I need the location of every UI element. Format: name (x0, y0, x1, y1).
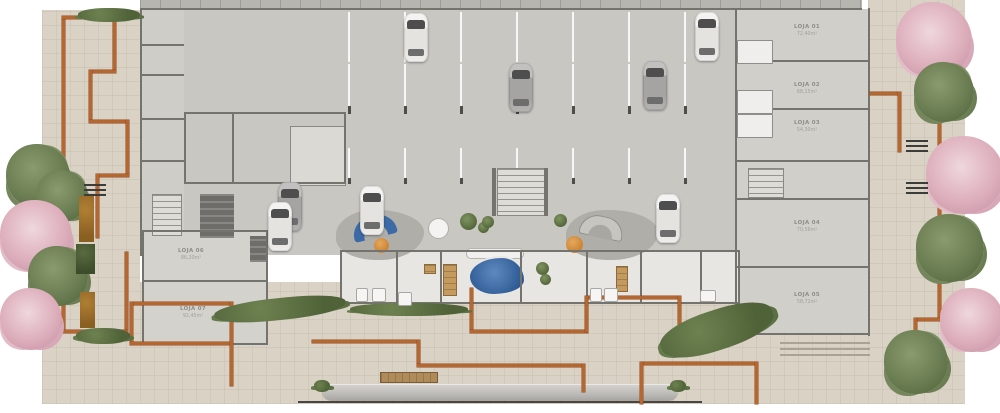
unit-area: 54,30m² (786, 127, 828, 133)
wall-segment (344, 112, 346, 182)
planter-bed (79, 196, 94, 242)
potted-plant (460, 213, 477, 230)
unit-name: LOJA 07 (172, 306, 214, 313)
wall-segment (640, 252, 642, 302)
shop-elevator (250, 236, 266, 262)
bicycle-rack-bar (906, 187, 928, 189)
wall-segment (340, 250, 740, 252)
parked-car (360, 186, 384, 235)
garden-path-line (130, 302, 230, 305)
garden-path-line (470, 288, 473, 332)
potted-plant (540, 274, 551, 285)
plaza-curb-wall (322, 384, 678, 400)
garden-path-line (130, 302, 133, 344)
wall-segment (735, 266, 870, 268)
unit-label: LOJA 0686,20m² (170, 248, 212, 261)
unit-label: LOJA 0470,56m² (786, 220, 828, 233)
water-feature-pond (468, 256, 526, 296)
tree-green (914, 62, 974, 122)
bicycle-rack-bar (906, 182, 928, 184)
potted-plant (536, 262, 549, 275)
garden-path-line (96, 174, 129, 177)
tree-pink (926, 136, 1000, 214)
bicycle-rack-bar (906, 145, 928, 147)
unit-area: 92,45m² (172, 313, 214, 319)
wall-segment (544, 168, 548, 216)
garden-path-line (582, 364, 585, 392)
plaza-steps-right (780, 342, 870, 360)
bicycle-rack-bar (84, 189, 106, 191)
tree-green (916, 214, 984, 282)
wall-segment (266, 230, 268, 344)
structural-columns-row (348, 106, 740, 114)
wall-segment (738, 252, 740, 302)
bicycle-rack-bar (906, 150, 928, 152)
unit-name: LOJA 03 (786, 120, 828, 127)
garden-path-line (126, 120, 129, 176)
garden-path-line (870, 92, 900, 95)
unit-area: 58,72m² (786, 299, 828, 305)
garden-path-line (640, 362, 758, 365)
bathroom-fixture (356, 288, 368, 302)
bathroom-fixture (700, 290, 716, 302)
garden-path-line (585, 296, 588, 332)
parked-car (695, 12, 719, 61)
wall-segment (184, 112, 186, 182)
wall-segment (440, 252, 442, 302)
wall-segment (140, 118, 184, 120)
right-staircase (748, 168, 784, 198)
wall-segment (142, 230, 144, 344)
parked-car (656, 194, 680, 243)
garden-path-line (130, 342, 230, 345)
round-table-white (428, 218, 449, 239)
wood-shelf-unit (443, 264, 457, 296)
unit-area: 68,15m² (786, 89, 828, 95)
unit-area: 86,20m² (170, 255, 212, 261)
wall-segment (140, 44, 184, 46)
wall-segment (735, 160, 870, 162)
unit-label: LOJA 0792,45m² (172, 306, 214, 319)
garden-path-line (914, 318, 941, 321)
garden-path-line (640, 362, 643, 404)
unit-label: LOJA 0558,72m² (786, 292, 828, 305)
garden-path-line (89, 70, 116, 73)
bathroom-fixture (604, 288, 618, 302)
garden-path-line (125, 252, 128, 332)
storage-unit (737, 40, 773, 64)
potted-plant (554, 214, 567, 227)
bicycle-rack-bar (906, 192, 928, 194)
unit-name: LOJA 01 (786, 24, 828, 31)
parked-car (404, 13, 428, 62)
wall-segment (868, 8, 870, 336)
parked-car (268, 202, 292, 251)
garden-path-line (898, 92, 901, 152)
garden-path-line (113, 16, 116, 72)
tree-pink (940, 288, 1000, 352)
tree-pink (0, 288, 62, 350)
wall-segment (586, 252, 588, 302)
garden-path-line (89, 70, 92, 122)
garden-path-line (312, 340, 420, 343)
unit-area: 72,40m² (786, 31, 828, 37)
unit-name: LOJA 06 (170, 248, 212, 255)
bicycle-rack-bar (84, 184, 106, 186)
unit-name: LOJA 02 (786, 82, 828, 89)
unit-label: LOJA 0172,40m² (786, 24, 828, 37)
wood-counter-small (424, 264, 436, 274)
parked-car (643, 61, 667, 110)
plaza-bench (380, 372, 438, 383)
wall-segment (142, 230, 268, 232)
planter-bed (80, 292, 95, 328)
garage-interior-room (290, 126, 346, 186)
tree-green (884, 330, 948, 394)
central-staircase (497, 168, 547, 216)
wall-segment (184, 112, 346, 114)
garden-path-line (89, 120, 129, 123)
wall-segment (140, 160, 184, 162)
bathroom-fixture (398, 292, 412, 306)
wall-segment (184, 182, 346, 184)
wall-segment (735, 198, 870, 200)
wall-segment (142, 280, 268, 282)
parked-car (509, 63, 533, 112)
wall-segment (140, 74, 184, 76)
wood-shelf-unit-right (616, 266, 628, 292)
storage-unit (737, 90, 773, 114)
unit-area: 70,56m² (786, 227, 828, 233)
wall-segment (232, 112, 234, 182)
planter-bed (76, 244, 95, 274)
wall-segment (140, 8, 862, 10)
hedge (78, 8, 140, 22)
bathroom-fixture (590, 288, 602, 302)
potted-plant (482, 216, 494, 228)
hedge (670, 380, 686, 392)
wall-segment (340, 252, 342, 302)
garden-path-line (470, 330, 588, 333)
hedge (76, 328, 130, 344)
parking-stalls-row-2 (348, 64, 740, 110)
garden-path-line (417, 364, 585, 367)
wall-segment (520, 252, 522, 302)
bathroom-fixture (372, 288, 386, 302)
unit-name: LOJA 04 (786, 220, 828, 227)
unit-label: LOJA 0268,15m² (786, 82, 828, 95)
storage-unit (737, 114, 773, 138)
bicycle-rack-bar (84, 194, 106, 196)
unit-name: LOJA 05 (786, 292, 828, 299)
garden-path-line (755, 362, 758, 404)
bicycle-rack-bar (906, 140, 928, 142)
floor-plan-canvas: LOJA 0172,40m²LOJA 0268,15m²LOJA 0354,30… (0, 0, 1000, 413)
garden-path-line (417, 340, 420, 366)
unit-label: LOJA 0354,30m² (786, 120, 828, 133)
wall-segment (492, 168, 496, 216)
hedge (314, 380, 330, 392)
